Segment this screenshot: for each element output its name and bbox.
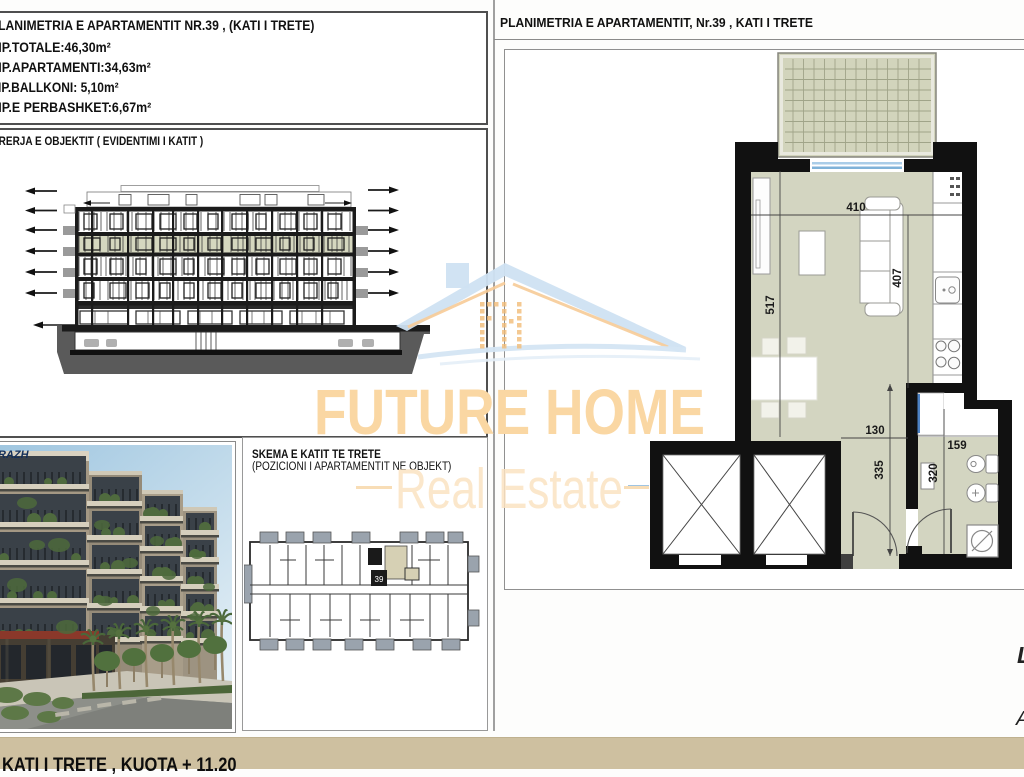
svg-text:130: 130 (865, 425, 884, 437)
svg-text:159: 159 (947, 440, 966, 452)
svg-text:320: 320 (928, 463, 940, 482)
svg-text:517: 517 (765, 295, 777, 314)
svg-text:407: 407 (892, 268, 904, 287)
svg-text:RAZH: RAZH (0, 449, 30, 461)
svg-text:39: 39 (375, 575, 384, 584)
svg-text:410: 410 (846, 202, 865, 214)
svg-text:335: 335 (874, 460, 886, 480)
